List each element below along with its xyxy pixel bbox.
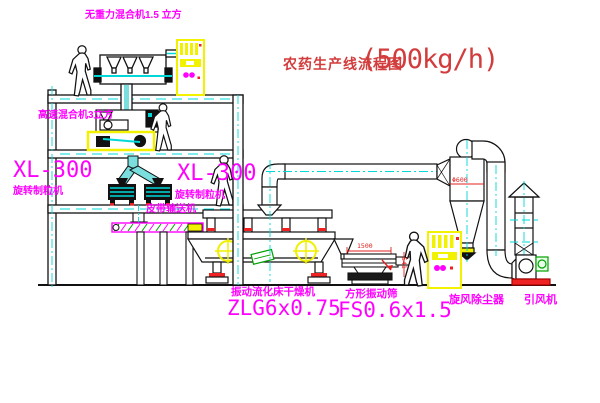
induced-draft-fan-machine bbox=[512, 255, 550, 285]
screen-model: FS0.6x1.5 bbox=[338, 300, 452, 321]
granulator-right-model: XL-300 bbox=[177, 163, 256, 185]
granulator-right-machine bbox=[144, 178, 172, 206]
granulator-left-model: XL-300 bbox=[13, 160, 92, 182]
belt-conveyor-label: 皮带输送机 bbox=[146, 205, 196, 215]
high-speed-mixer-label: 高速混合机3立方 bbox=[38, 111, 114, 121]
granulator-right-label: 旋转制粒机 bbox=[175, 191, 225, 201]
building-column bbox=[233, 95, 243, 285]
fluid-bed-dryer-machine bbox=[188, 210, 353, 283]
screen-width-dimension: 1500 bbox=[357, 243, 373, 250]
screen-height-dimension: 541 bbox=[401, 257, 408, 269]
control-cabinet-top bbox=[177, 40, 204, 95]
control-cabinet-right bbox=[428, 232, 461, 288]
diagram-title-capacity: (500kg/h) bbox=[361, 46, 498, 73]
worker-ground bbox=[405, 232, 428, 286]
gravity-mixer-label: 无重力混合机1.5 立方 bbox=[85, 11, 182, 21]
cyclone-diameter-dimension: Φ600 bbox=[452, 177, 468, 184]
dryer-model: ZLG6x0.75 bbox=[227, 298, 341, 319]
granulator-left-label: 旋转制粒机 bbox=[13, 187, 63, 197]
cyclone-label: 旋风除尘器 bbox=[449, 295, 504, 306]
granulator-left-machine bbox=[108, 178, 136, 206]
process-flow-diagram: 无重力混合机1.5 立方 农药生产线流程图 (500kg/h) 高速混合机3立方… bbox=[0, 0, 600, 403]
worker-top-floor bbox=[69, 46, 91, 96]
fan-label: 引风机 bbox=[524, 295, 557, 306]
